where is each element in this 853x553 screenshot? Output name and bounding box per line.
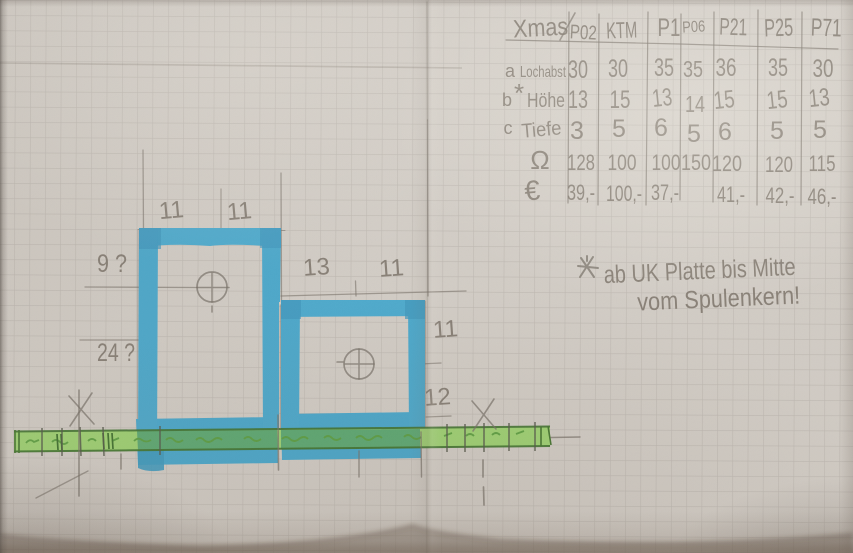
svg-text:35: 35 <box>768 54 788 82</box>
svg-text:37,-: 37,- <box>651 180 679 205</box>
svg-text:€: € <box>523 174 542 206</box>
svg-text:P21: P21 <box>719 14 748 42</box>
svg-text:120: 120 <box>712 151 742 176</box>
svg-text:30: 30 <box>608 55 628 83</box>
svg-text:P1: P1 <box>658 14 681 42</box>
svg-text:11: 11 <box>378 254 405 283</box>
svg-text:39,-: 39,- <box>567 180 595 205</box>
svg-text:100,-: 100,- <box>606 181 642 206</box>
svg-text:P06: P06 <box>682 18 706 36</box>
svg-text:5: 5 <box>770 117 784 145</box>
svg-text:KTM: KTM <box>606 16 638 43</box>
svg-text:30: 30 <box>568 56 588 84</box>
svg-text:35: 35 <box>654 54 674 82</box>
svg-text:c: c <box>504 118 513 138</box>
svg-text:6: 6 <box>654 114 668 142</box>
svg-text:5: 5 <box>612 115 626 143</box>
svg-text:Lochabst: Lochabst <box>520 64 566 81</box>
svg-text:Xmas: Xmas <box>512 13 568 44</box>
svg-text:Höhe: Höhe <box>527 90 565 112</box>
svg-text:46,-: 46,- <box>808 184 837 209</box>
svg-text:5: 5 <box>687 120 701 148</box>
svg-text:36: 36 <box>716 54 737 82</box>
svg-text:120: 120 <box>765 152 793 177</box>
svg-text:*: * <box>514 78 524 108</box>
svg-text:15: 15 <box>610 86 631 114</box>
svg-text:12: 12 <box>423 383 452 412</box>
svg-text:15: 15 <box>765 85 789 115</box>
svg-text:6: 6 <box>718 118 732 146</box>
svg-text:3: 3 <box>570 117 584 145</box>
svg-text:11: 11 <box>226 197 253 226</box>
svg-text:24 ?: 24 ? <box>97 339 135 367</box>
svg-text:13: 13 <box>651 83 674 113</box>
svg-text:14: 14 <box>685 91 705 117</box>
svg-text:b: b <box>502 90 512 110</box>
svg-text:9 ?: 9 ? <box>97 250 127 278</box>
svg-text:100: 100 <box>652 150 681 175</box>
svg-text:P02: P02 <box>569 21 597 44</box>
svg-text:35: 35 <box>683 56 703 82</box>
svg-text:115: 115 <box>809 151 836 176</box>
svg-text:11: 11 <box>432 315 459 344</box>
svg-text:Tiefe: Tiefe <box>521 117 563 142</box>
svg-text:13: 13 <box>568 86 588 114</box>
svg-text:41,-: 41,- <box>717 182 745 207</box>
svg-text:15: 15 <box>712 85 736 115</box>
svg-text:13: 13 <box>807 83 831 113</box>
svg-text:11: 11 <box>158 196 185 225</box>
svg-text:128: 128 <box>567 150 595 175</box>
svg-text:P25: P25 <box>764 14 794 43</box>
svg-text:150: 150 <box>681 150 711 175</box>
svg-text:Ω: Ω <box>530 145 549 175</box>
svg-text:13: 13 <box>302 253 331 282</box>
svg-text:5: 5 <box>813 116 827 144</box>
svg-text:42,-: 42,- <box>766 183 795 208</box>
svg-text:30: 30 <box>813 55 834 83</box>
svg-text:P71: P71 <box>810 13 842 42</box>
svg-text:100: 100 <box>608 150 637 175</box>
